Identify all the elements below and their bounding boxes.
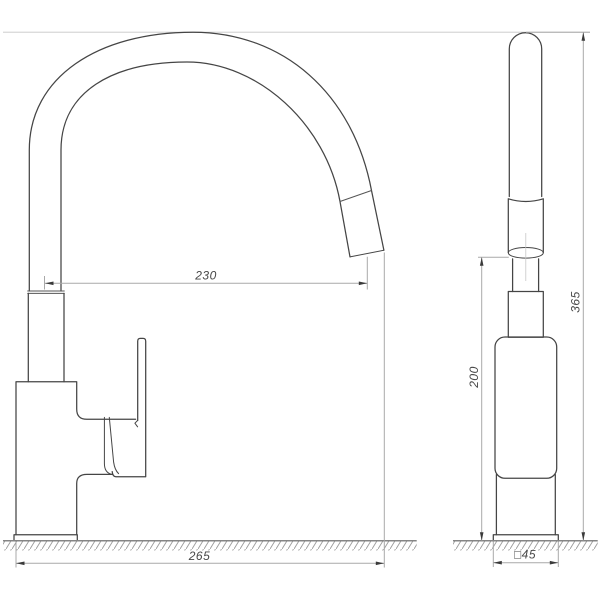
arrowhead-left-265 (16, 562, 25, 566)
dimension-label-45: □45 (514, 548, 536, 562)
cartridge-stem (104, 417, 118, 474)
arrowhead-right-45 (550, 561, 559, 565)
body-front (495, 337, 557, 478)
dimension-overall-depth: 265 (16, 253, 384, 568)
dimension-label-265: 265 (188, 549, 211, 563)
dimension-lines-365 (526, 32, 590, 541)
collar-front (508, 292, 543, 338)
body-outline-side (16, 382, 136, 535)
arrowhead-top-365 (582, 32, 586, 41)
front-view: 200 365 □45 (453, 32, 598, 567)
arrowhead-bottom-365 (582, 532, 586, 541)
dimension-overall-height: 365 (526, 32, 590, 541)
arrowhead-right-230 (359, 282, 368, 286)
spout-outer-curve (29, 32, 384, 291)
body-lower-front (496, 475, 555, 535)
faucet-technical-drawing: 230 265 200 (0, 0, 600, 600)
side-view: 230 265 (3, 32, 417, 567)
sprayer-outlet (350, 250, 384, 257)
arrowhead-right-265 (376, 562, 385, 566)
spout-tube-front (509, 33, 541, 197)
base-plate-side (14, 535, 77, 541)
dimension-spout-reach: 230 (45, 257, 368, 290)
dimension-lines-265 (16, 253, 384, 568)
arrowhead-bottom-200 (480, 532, 484, 541)
riser-tube (28, 293, 64, 381)
spout-inner-curve (61, 62, 350, 291)
sprayer-seam (340, 191, 372, 202)
dimension-label-230: 230 (194, 269, 217, 283)
handle-lever (112, 338, 146, 476)
dimension-lines-200 (478, 257, 509, 540)
dimension-label-200: 200 (467, 366, 481, 389)
arrowhead-left-45 (493, 561, 502, 565)
handle-lever-foot (135, 420, 138, 426)
dimension-label-365: 365 (569, 291, 583, 313)
dimension-spout-height: 200 (467, 257, 509, 540)
base-plate-front (493, 535, 558, 541)
riser-joint-seam (28, 291, 65, 293)
arrowhead-left-230 (45, 282, 54, 286)
arrowhead-top-200 (480, 257, 484, 266)
